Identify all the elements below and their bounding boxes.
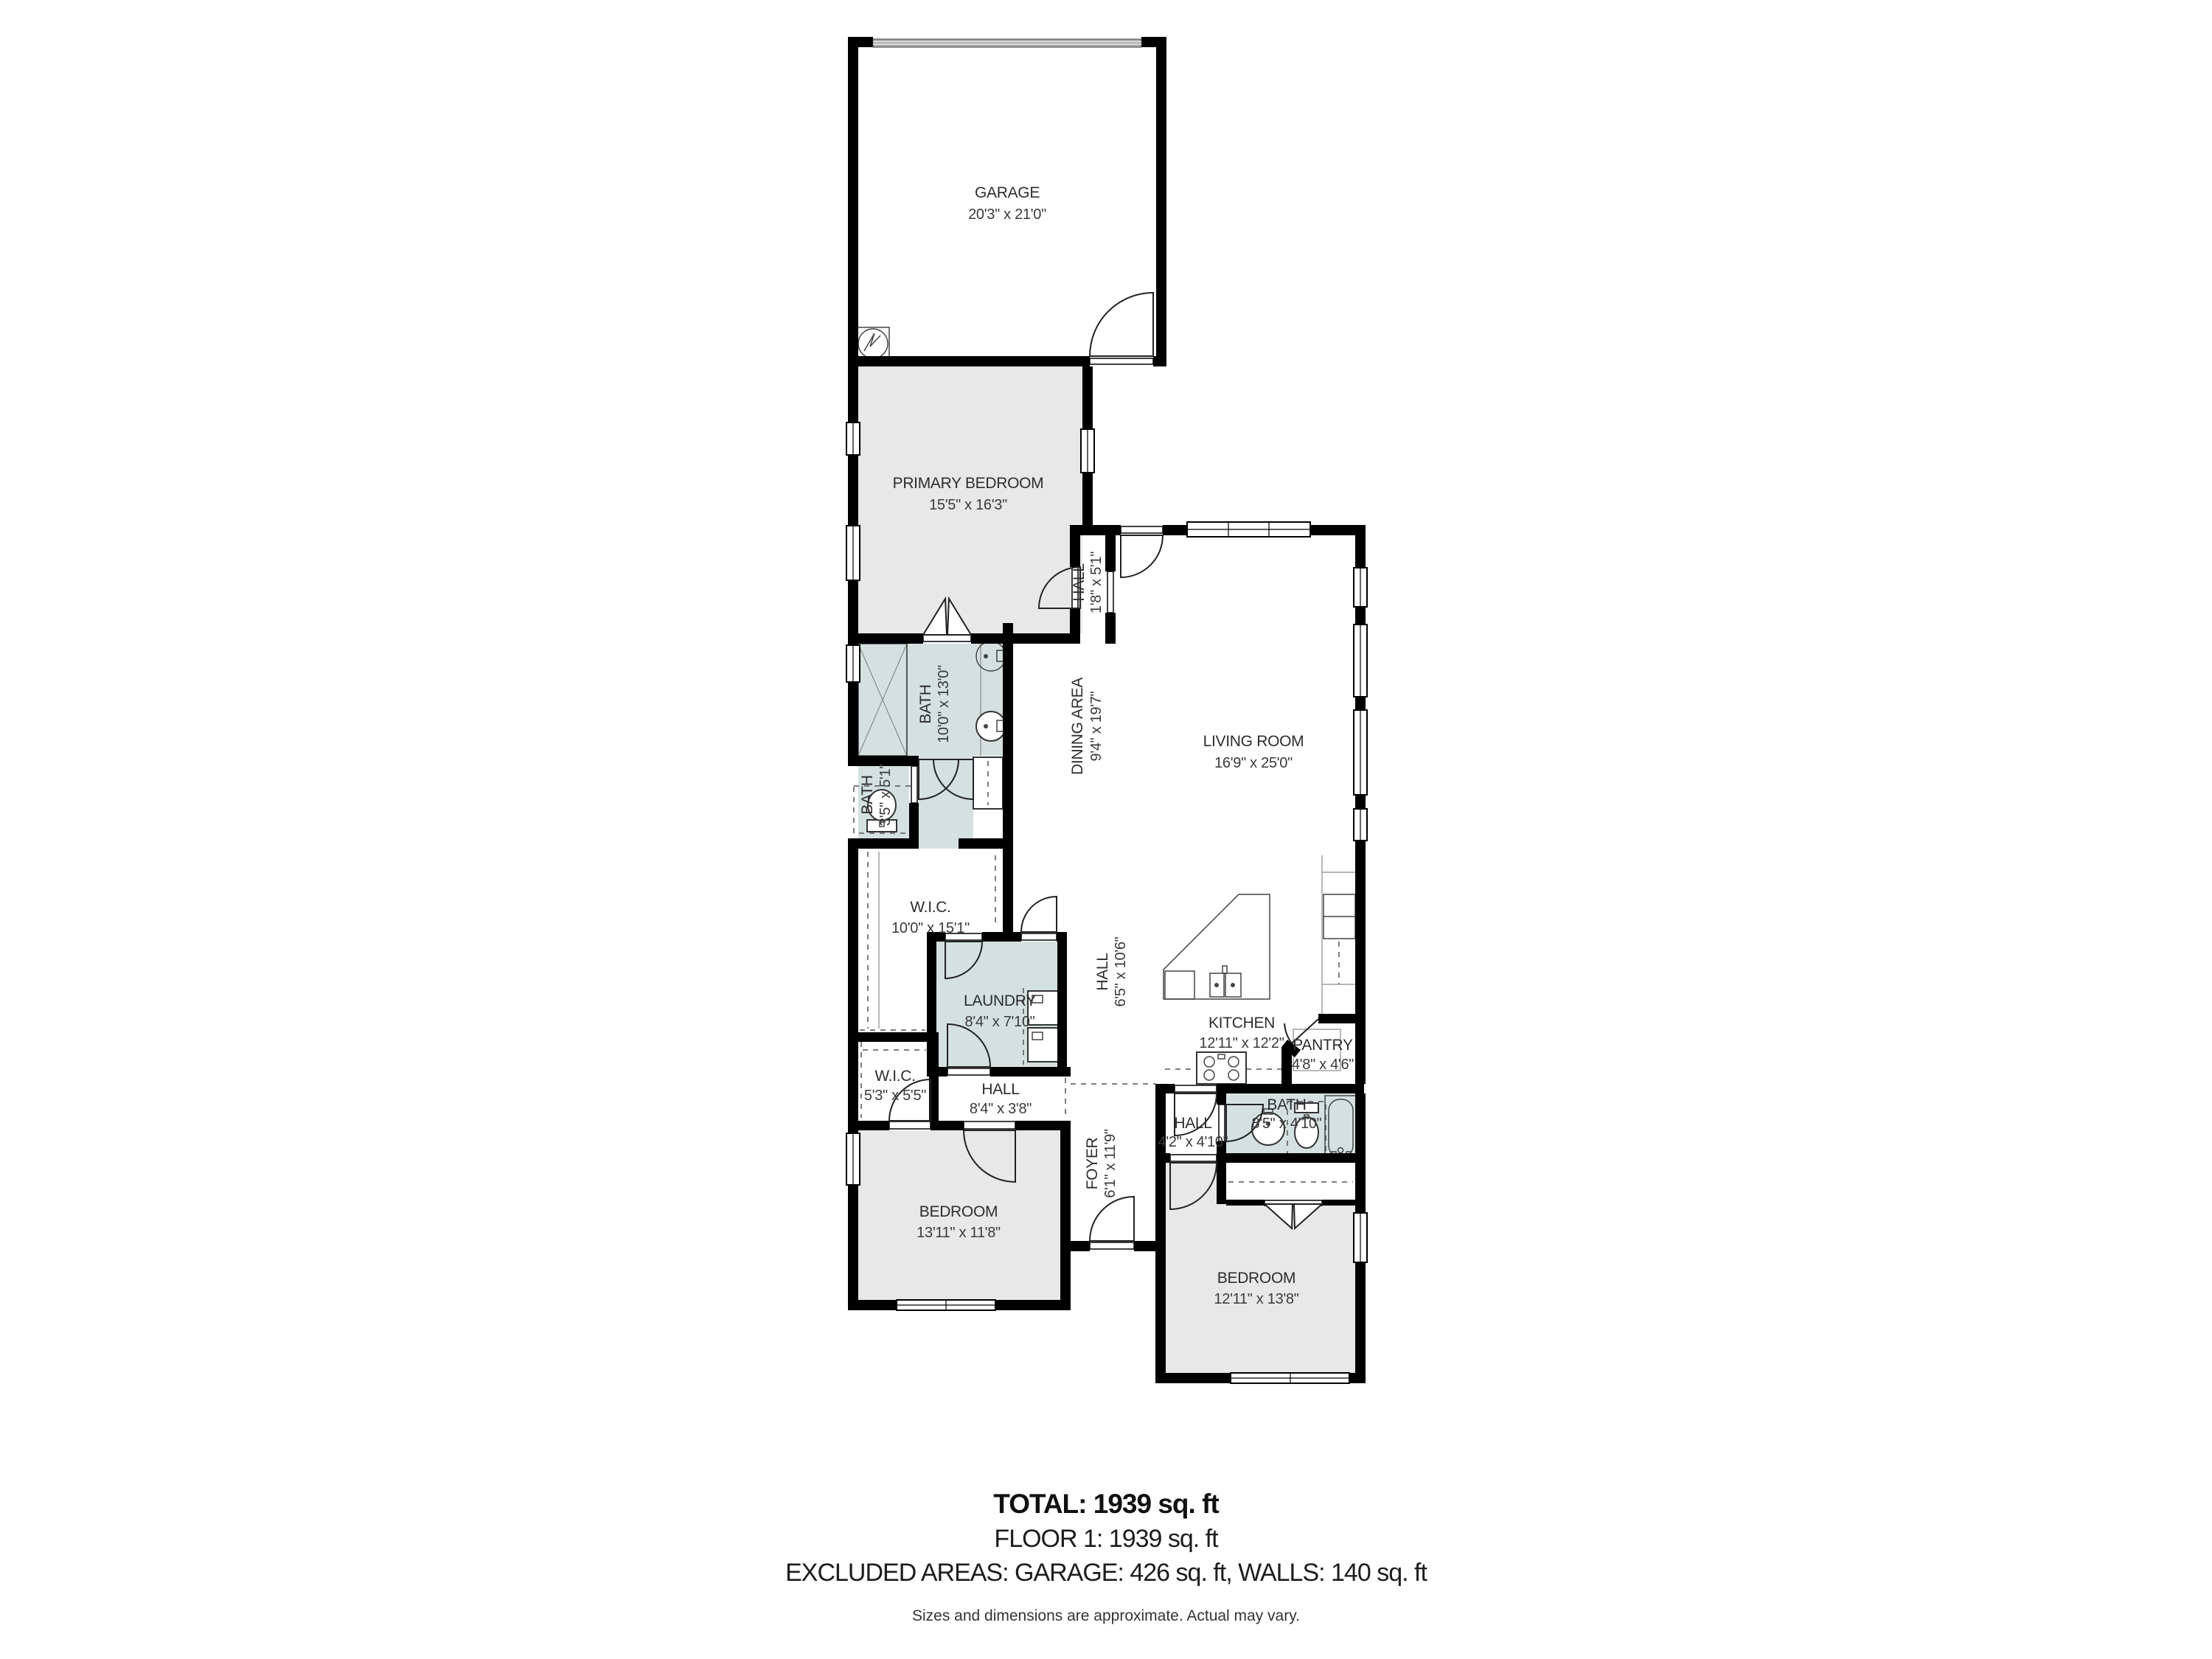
room-dims: 4'2" x 4'10" bbox=[1158, 1134, 1228, 1150]
room-label: BATH bbox=[859, 775, 876, 814]
door-arc bbox=[1121, 535, 1163, 577]
room-hall-lower: HALL 8'4" x 3'8" bbox=[970, 1081, 1032, 1117]
window bbox=[1354, 568, 1367, 607]
total-area-text: TOTAL: 1939 sq. ft bbox=[993, 1489, 1219, 1519]
room-dims: 8'4" x 3'8" bbox=[970, 1101, 1032, 1117]
room-garage: GARAGE 20'3" x 21'0" bbox=[968, 184, 1046, 223]
water-heater-icon bbox=[857, 327, 889, 360]
window bbox=[846, 526, 860, 580]
window bbox=[846, 422, 860, 455]
room-fills bbox=[858, 366, 1355, 1373]
room-dims: 12'11" x 13'8" bbox=[1214, 1291, 1298, 1307]
room-pantry: PANTRY 4'8" x 4'6" bbox=[1292, 1037, 1354, 1073]
window bbox=[846, 645, 860, 682]
room-dims: 1'8" x 5'1" bbox=[1088, 552, 1105, 613]
window bbox=[1187, 522, 1310, 537]
closet-floor bbox=[1226, 1163, 1355, 1200]
stove-icon bbox=[1165, 1052, 1281, 1084]
room-dims: 8'5" x 4'10" bbox=[1252, 1116, 1322, 1132]
room-label: DINING AREA bbox=[1069, 678, 1086, 775]
bath-vestibule-floor bbox=[919, 756, 973, 849]
room-hall-center: HALL 6'5" x 10'6" bbox=[1094, 936, 1129, 1006]
room-label: LAUNDRY bbox=[964, 992, 1036, 1009]
room-living: LIVING ROOM 16'9" x 25'0" bbox=[1203, 733, 1304, 771]
room-dims: 20'3" x 21'0" bbox=[968, 206, 1046, 223]
room-label: LIVING ROOM bbox=[1203, 733, 1304, 750]
room-label: W.I.C. bbox=[874, 1068, 915, 1085]
room-label: BATH bbox=[917, 684, 934, 723]
window bbox=[1354, 1213, 1367, 1262]
room-label: KITCHEN bbox=[1208, 1015, 1275, 1032]
room-label: W.I.C. bbox=[910, 899, 950, 916]
room-label: FOYER bbox=[1084, 1137, 1101, 1189]
room-label: BEDROOM bbox=[1217, 1270, 1295, 1287]
room-dims: 10'0" x 13'0" bbox=[936, 665, 952, 743]
floor-plan-page: GARAGE 20'3" x 21'0" PRIMARY BEDROOM 15'… bbox=[0, 0, 2212, 1659]
window bbox=[1354, 809, 1367, 841]
room-dims: 5'3" x 5'5" bbox=[864, 1088, 926, 1104]
room-label: BEDROOM bbox=[919, 1203, 998, 1220]
room-dining: DINING AREA 9'4" x 19'7" bbox=[1069, 678, 1105, 775]
room-label: HALL bbox=[1071, 563, 1088, 601]
door-arc bbox=[1021, 897, 1057, 932]
room-label: HALL bbox=[1094, 953, 1111, 990]
room-dims: 15'5" x 16'3" bbox=[929, 497, 1007, 513]
room-label: GARAGE bbox=[975, 184, 1040, 201]
room-label: PANTRY bbox=[1293, 1037, 1353, 1054]
room-dims: 13'11" x 11'8" bbox=[917, 1225, 1001, 1241]
kitchen-island-icon bbox=[1164, 894, 1270, 999]
room-dims: 4'8" x 4'6" bbox=[1292, 1057, 1354, 1073]
room-wic-large: W.I.C. 10'0" x 15'1" bbox=[891, 899, 970, 936]
room-hall-bath-hall: HALL 4'2" x 4'10" bbox=[1158, 1115, 1228, 1150]
room-wic-small: W.I.C. 5'3" x 5'5" bbox=[864, 1068, 926, 1104]
room-dims: 10'0" x 15'1" bbox=[891, 920, 970, 936]
linen-cabinet-icon bbox=[973, 757, 1003, 809]
floor-plan-svg: GARAGE 20'3" x 21'0" PRIMARY BEDROOM 15'… bbox=[0, 0, 2212, 1659]
summary-block: TOTAL: 1939 sq. ft FLOOR 1: 1939 sq. ft … bbox=[785, 1489, 1427, 1624]
window bbox=[1231, 1373, 1349, 1383]
window bbox=[1354, 710, 1367, 795]
room-dims: 6'5" x 10'6" bbox=[1113, 936, 1129, 1006]
window bbox=[846, 1133, 860, 1185]
opening-dashes bbox=[1065, 1078, 1155, 1119]
room-label: HALL bbox=[981, 1081, 1019, 1098]
room-dims: 9'4" x 19'7" bbox=[1088, 691, 1105, 761]
door-arc bbox=[1090, 1197, 1134, 1241]
excluded-areas-text: EXCLUDED AREAS: GARAGE: 426 sq. ft, WALL… bbox=[785, 1559, 1427, 1587]
window bbox=[1354, 625, 1367, 697]
room-kitchen: KITCHEN 12'11" x 12'2" bbox=[1199, 1015, 1284, 1051]
room-label: HALL bbox=[1174, 1115, 1211, 1132]
window bbox=[1081, 429, 1094, 473]
room-dims: 3'5" x 5'1" bbox=[877, 764, 894, 826]
room-dims: 12'11" x 12'2" bbox=[1199, 1035, 1284, 1051]
room-foyer: FOYER 6'1" x 11'9" bbox=[1084, 1129, 1119, 1198]
window bbox=[897, 1300, 995, 1310]
room-label: PRIMARY BEDROOM bbox=[893, 475, 1044, 492]
garage-door bbox=[873, 39, 1141, 47]
room-label: BATH bbox=[1267, 1096, 1306, 1113]
disclaimer-text: Sizes and dimensions are approximate. Ac… bbox=[912, 1607, 1300, 1624]
room-dims: 6'1" x 11'9" bbox=[1102, 1129, 1119, 1198]
door-arc bbox=[1090, 293, 1153, 356]
floor-area-text: FLOOR 1: 1939 sq. ft bbox=[994, 1525, 1219, 1553]
room-dims: 16'9" x 25'0" bbox=[1214, 755, 1293, 771]
room-dims: 8'4" x 7'10" bbox=[965, 1014, 1035, 1030]
fridge-counter-icon bbox=[1322, 855, 1355, 1018]
